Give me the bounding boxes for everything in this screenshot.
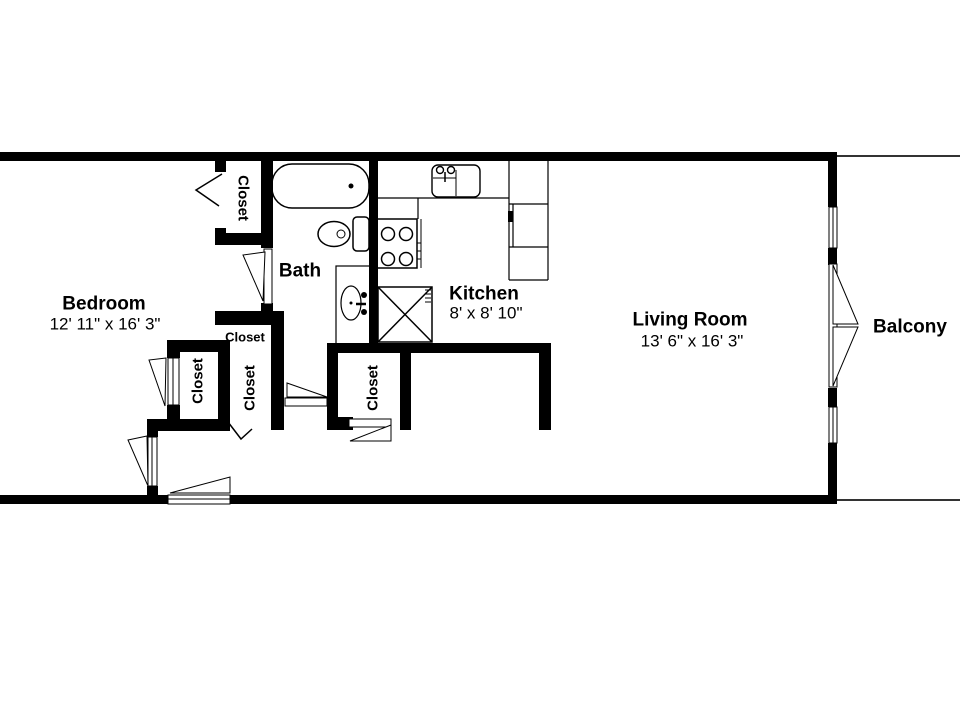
kitchen-sink bbox=[432, 165, 480, 197]
plan-symbols bbox=[0, 0, 960, 720]
bath-door-swing bbox=[243, 249, 272, 304]
window-closet-a-swing bbox=[149, 358, 166, 406]
stove bbox=[377, 219, 421, 268]
closet-b-door bbox=[228, 422, 252, 439]
living-room-label: Living Room bbox=[632, 311, 747, 330]
living-room-dimensions: 13' 6" x 16' 3" bbox=[641, 333, 744, 350]
window-bottom-swing bbox=[170, 477, 230, 493]
closet-hall-door-swing bbox=[349, 419, 391, 441]
hall-door-swing bbox=[285, 383, 327, 406]
window-bedroom-bottom bbox=[168, 495, 230, 504]
floor-plan: Bedroom 12' 11" x 16' 3" Bath Kitchen 8'… bbox=[0, 0, 960, 720]
kitchen-dimensions: 8' x 8' 10" bbox=[449, 305, 522, 322]
closet-a-label: Closet bbox=[191, 358, 206, 404]
window-closet-a bbox=[168, 358, 179, 405]
balcony-label: Balcony bbox=[873, 318, 947, 337]
window-balcony-lower bbox=[829, 407, 837, 443]
bathtub bbox=[272, 164, 369, 208]
bedroom-label: Bedroom bbox=[62, 295, 145, 314]
closet-top-bifold-door bbox=[196, 174, 222, 206]
appliance-xbox bbox=[378, 287, 432, 342]
kitchen-label: Kitchen bbox=[449, 285, 519, 304]
closet-b-label: Closet bbox=[243, 365, 258, 411]
window-balcony-upper bbox=[829, 207, 837, 248]
toilet bbox=[318, 217, 369, 251]
bath-label: Bath bbox=[279, 262, 321, 281]
closet-c-label: Closet bbox=[366, 365, 381, 411]
bath-vanity-sink bbox=[336, 266, 370, 344]
bedroom-dimensions: 12' 11" x 16' 3" bbox=[50, 316, 161, 333]
window-sw-swing bbox=[128, 436, 148, 486]
window-bedroom-sw bbox=[148, 437, 157, 486]
balcony-door bbox=[829, 264, 858, 387]
closet-small-label: Closet bbox=[225, 331, 265, 344]
closet-top-label: Closet bbox=[236, 175, 251, 221]
